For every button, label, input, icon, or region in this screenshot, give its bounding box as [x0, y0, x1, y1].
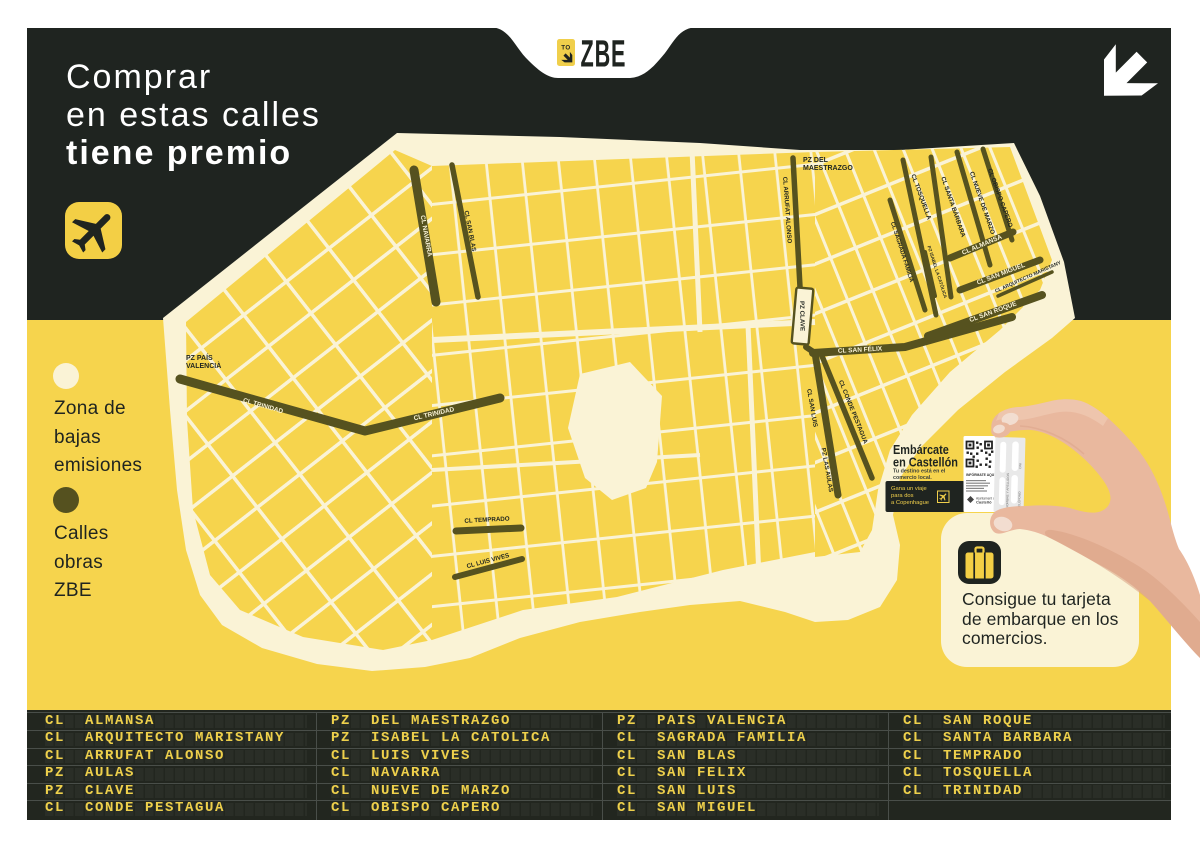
svg-text:PZ CLAVE: PZ CLAVE [798, 301, 806, 331]
svg-text:para dos: para dos [891, 493, 914, 499]
svg-text:INFÓRMATE AQUÍ: INFÓRMATE AQUÍ [966, 472, 996, 477]
svg-text:Castelló: Castelló [976, 500, 992, 505]
svg-text:MAESTRAZGO: MAESTRAZGO [803, 165, 853, 172]
svg-text:ZBE: ZBE [581, 32, 627, 75]
svg-text:PZ DEL: PZ DEL [803, 157, 829, 164]
svg-text:PZ PAÍS: PZ PAÍS [186, 353, 213, 362]
svg-text:comercio local.: comercio local. [893, 475, 932, 481]
svg-text:TELÉFONO: TELÉFONO [1016, 491, 1021, 509]
svg-text:a Copenhague: a Copenhague [891, 500, 929, 506]
svg-text:DNI: DNI [1018, 463, 1022, 469]
svg-text:Tu destino está en el: Tu destino está en el [893, 468, 946, 474]
svg-text:VALENCIÀ: VALENCIÀ [186, 361, 221, 370]
svg-text:Gana un viaje: Gana un viaje [891, 486, 927, 492]
svg-text:TO: TO [561, 45, 570, 52]
